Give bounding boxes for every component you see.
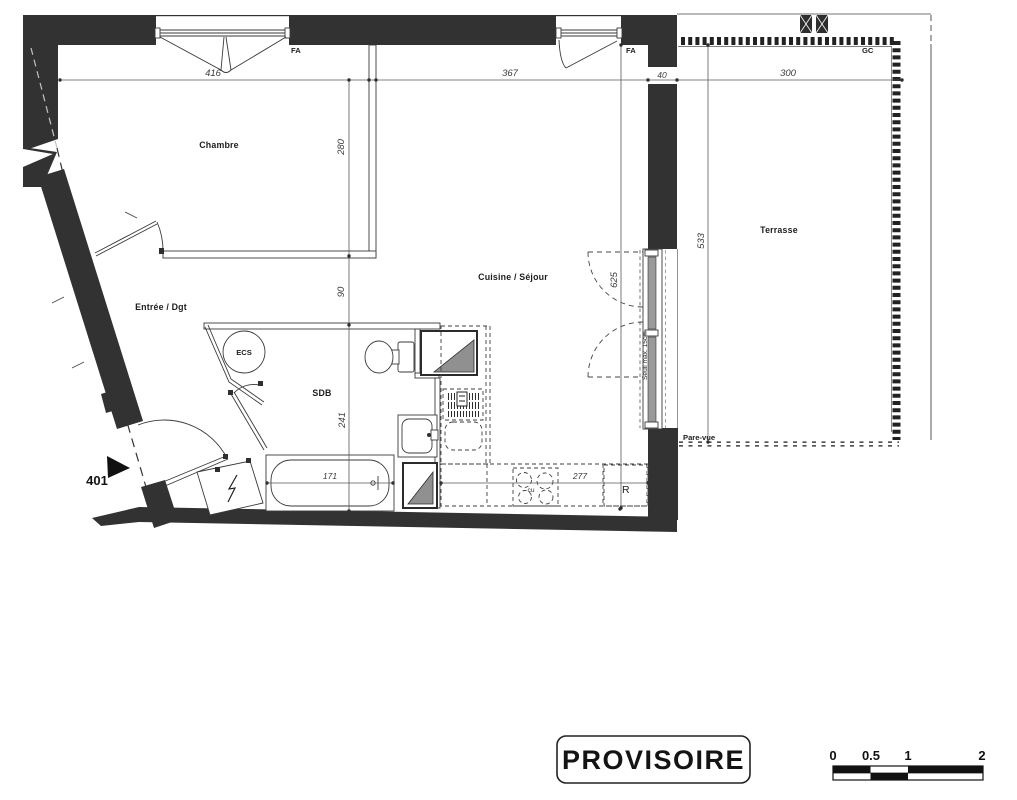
bathroom-north-wall xyxy=(204,323,440,329)
electrical-closet xyxy=(197,458,263,515)
dim-hall: 90 xyxy=(336,286,347,297)
label-window-living: FA xyxy=(626,46,636,55)
washbasin xyxy=(398,415,438,457)
floor-plan-canvas: 416 367 40 300 280 90 241 625 533 171 27… xyxy=(0,0,1017,800)
dim-bathroom-depth: 241 xyxy=(337,412,348,429)
unit-number: 401 xyxy=(86,473,108,488)
dim-bedroom-width: 416 xyxy=(205,68,222,79)
diagonal-wall xyxy=(38,169,143,429)
label-guardrail: GC xyxy=(862,46,874,55)
dim-terrace-width: 300 xyxy=(780,68,797,79)
sink-unit-top xyxy=(421,331,477,375)
bedroom-partition xyxy=(369,45,376,258)
boundary-lines xyxy=(31,14,931,487)
dim-living-depth: 625 xyxy=(609,271,620,288)
label-water-heater: ECS xyxy=(236,348,252,357)
label-terrace: Terrasse xyxy=(760,225,798,235)
scale-tick-1: 1 xyxy=(904,748,911,763)
stamp-text: PROVISOIRE xyxy=(562,745,745,775)
label-bathroom: SDB xyxy=(312,388,331,398)
label-living-kitchen: Cuisine / Séjour xyxy=(478,272,548,282)
dim-bathtub: 171 xyxy=(323,471,337,481)
hatched-appliance xyxy=(443,389,483,420)
toilet xyxy=(365,341,414,373)
dim-kitchen-run: 277 xyxy=(572,471,587,481)
entrance-arrow-icon xyxy=(107,456,130,478)
scale-bar: 0 0.5 1 2 xyxy=(829,748,985,780)
scale-tick-05: 0.5 xyxy=(862,748,880,763)
label-cooktop: cu xyxy=(528,487,535,494)
counter-bottom xyxy=(441,464,648,506)
bedroom-south-wall xyxy=(163,251,376,258)
label-entry: Entrée / Dgt xyxy=(135,302,187,312)
scale-tick-2: 2 xyxy=(978,748,985,763)
exterior-walls xyxy=(23,15,678,532)
provisoire-stamp: PROVISOIRE xyxy=(557,736,750,783)
dim-wall: 40 xyxy=(657,70,667,80)
scale-tick-0: 0 xyxy=(829,748,836,763)
dim-living-width: 367 xyxy=(502,68,519,79)
bedroom-door xyxy=(95,221,164,256)
bathroom-door xyxy=(234,384,259,393)
label-window-bedroom: FA xyxy=(291,46,301,55)
entrance-marker: 401 xyxy=(86,456,130,488)
dim-bedroom-depth: 280 xyxy=(336,138,347,156)
bedroom-window-recess xyxy=(156,16,289,45)
labels: Chambre Cuisine / Séjour Entrée / Dgt SD… xyxy=(86,46,874,496)
sink-bowl-dashed xyxy=(445,422,482,450)
living-window-recess xyxy=(556,16,621,45)
label-threshold: Seuil max. 15cm xyxy=(642,331,649,380)
label-bedroom: Chambre xyxy=(199,140,239,150)
dim-terrace-depth: 533 xyxy=(696,232,707,249)
sink-unit-bottom xyxy=(403,463,437,508)
label-fridge: R xyxy=(622,484,630,496)
label-pare-vue: Pare-vue xyxy=(683,433,715,442)
bay-window xyxy=(588,249,678,429)
cooktop xyxy=(513,468,558,506)
